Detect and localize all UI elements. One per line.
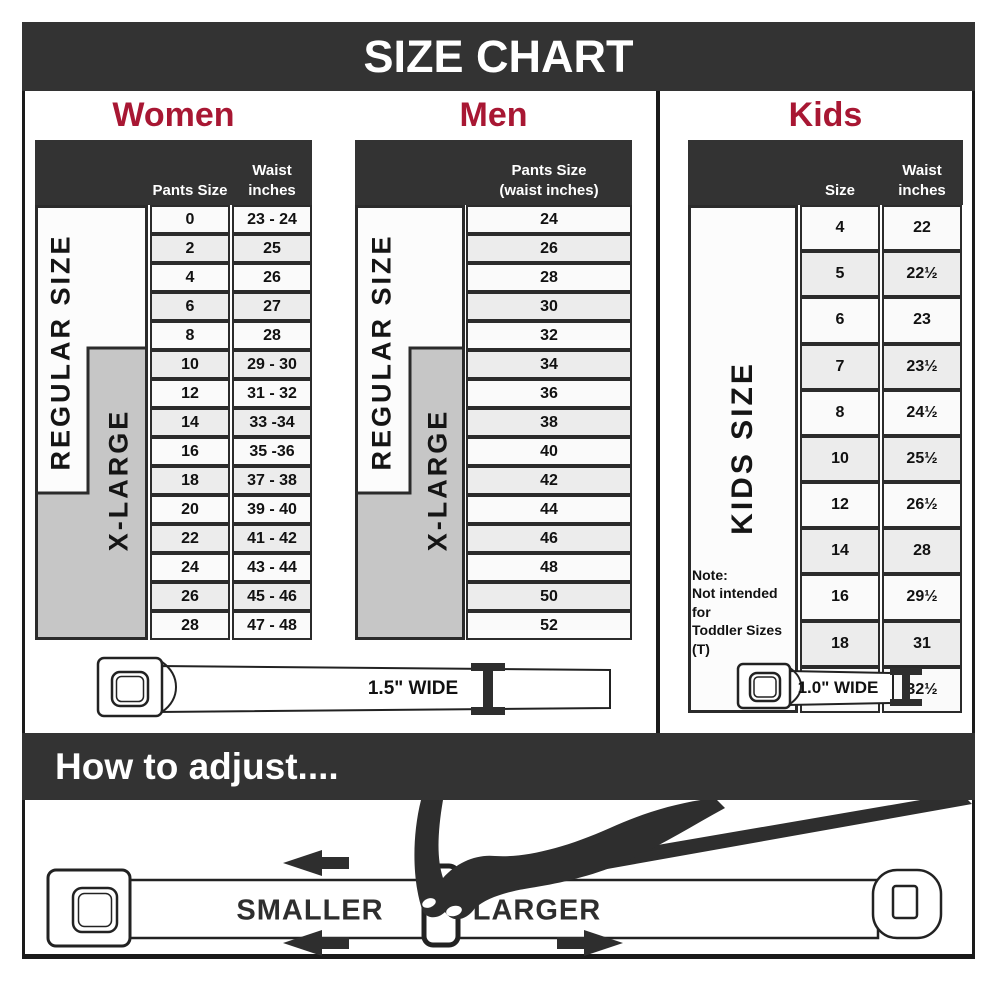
men-pants-cell: 50 bbox=[466, 582, 632, 611]
men-pants-cell: 46 bbox=[466, 524, 632, 553]
kids-size-cell: 7 bbox=[800, 344, 880, 390]
seatbelt-buckle-icon bbox=[48, 870, 130, 946]
women-pants-cell: 24 bbox=[150, 553, 230, 582]
men-pants-cell: 44 bbox=[466, 495, 632, 524]
adjustment-illustration bbox=[25, 800, 975, 958]
women-waist-cell: 31 - 32 bbox=[232, 379, 312, 408]
women-pants-cell: 14 bbox=[150, 408, 230, 437]
kids-col-size: Size bbox=[798, 140, 882, 205]
kids-waist-cell: 22½ bbox=[882, 251, 962, 297]
women-waist-cell: 29 - 30 bbox=[232, 350, 312, 379]
kids-note: Note: Not intended for Toddler Sizes (T) bbox=[692, 566, 798, 658]
kids-waist-cell: 26½ bbox=[882, 482, 962, 528]
women-pants-cell: 8 bbox=[150, 321, 230, 350]
kids-size-column: 45678101214161820 bbox=[800, 205, 880, 713]
men-pants-cell: 30 bbox=[466, 292, 632, 321]
how-to-adjust-heading: How to adjust.... bbox=[55, 746, 339, 788]
how-to-adjust-banner: How to adjust.... bbox=[22, 733, 975, 800]
women-waist-cell: 26 bbox=[232, 263, 312, 292]
men-pants-cell: 32 bbox=[466, 321, 632, 350]
women-heading: Women bbox=[35, 95, 312, 135]
kids-waist-cell: 22 bbox=[882, 205, 962, 251]
women-pants-cell: 12 bbox=[150, 379, 230, 408]
men-col-pants-size: Pants Size (waist inches) bbox=[466, 140, 632, 205]
women-pants-cell: 20 bbox=[150, 495, 230, 524]
women-xlarge-label: X-LARGE bbox=[104, 409, 135, 552]
kids-size-cell: 4 bbox=[800, 205, 880, 251]
kids-heading: Kids bbox=[688, 95, 963, 135]
women-pants-cell: 22 bbox=[150, 524, 230, 553]
men-pants-cell: 24 bbox=[466, 205, 632, 234]
women-waist-cell: 47 - 48 bbox=[232, 611, 312, 640]
size-chart-page: SIZE CHART Women Men Kids Pants Size Wai… bbox=[0, 0, 1000, 1000]
women-waist-cell: 37 - 38 bbox=[232, 466, 312, 495]
women-pants-cell: 0 bbox=[150, 205, 230, 234]
men-pants-cell: 40 bbox=[466, 437, 632, 466]
women-waist-cell: 23 - 24 bbox=[232, 205, 312, 234]
adult-belt-width-label: 1.5" WIDE bbox=[368, 678, 458, 700]
men-pants-cell: 34 bbox=[466, 350, 632, 379]
women-pants-cell: 28 bbox=[150, 611, 230, 640]
women-waist-cell: 27 bbox=[232, 292, 312, 321]
women-waist-cell: 41 - 42 bbox=[232, 524, 312, 553]
women-waist-cell: 43 - 44 bbox=[232, 553, 312, 582]
kids-waist-cell: 24½ bbox=[882, 390, 962, 436]
men-xlarge-label: X-LARGE bbox=[423, 409, 454, 552]
men-pants-cell: 26 bbox=[466, 234, 632, 263]
men-regular-label: REGULAR SIZE bbox=[367, 233, 398, 470]
kids-waist-cell: 29½ bbox=[882, 574, 962, 620]
women-pants-cell: 16 bbox=[150, 437, 230, 466]
kids-waist-cell: 23½ bbox=[882, 344, 962, 390]
width-ibeam-icon bbox=[890, 668, 922, 706]
women-pants-cell: 4 bbox=[150, 263, 230, 292]
women-waist-cell: 28 bbox=[232, 321, 312, 350]
kids-waist-cell: 23 bbox=[882, 297, 962, 343]
women-waist-cell: 25 bbox=[232, 234, 312, 263]
kids-belt-width-label: 1.0" WIDE bbox=[798, 678, 879, 698]
women-pants-column: 0246810121416182022242628 bbox=[150, 205, 230, 640]
kids-size-cell: 16 bbox=[800, 574, 880, 620]
women-regular-label: REGULAR SIZE bbox=[46, 233, 77, 470]
kids-size-cell: 5 bbox=[800, 251, 880, 297]
women-pants-cell: 26 bbox=[150, 582, 230, 611]
kids-size-cell: 14 bbox=[800, 528, 880, 574]
men-pants-cell: 36 bbox=[466, 379, 632, 408]
kids-size-label: KIDS SIZE bbox=[726, 361, 760, 535]
men-pants-cell: 28 bbox=[466, 263, 632, 292]
kids-waist-column: 2222½2323½24½25½26½2829½3132½ bbox=[882, 205, 962, 713]
section-divider bbox=[656, 91, 660, 733]
kids-waist-cell: 28 bbox=[882, 528, 962, 574]
kids-waist-cell: 25½ bbox=[882, 436, 962, 482]
women-pants-cell: 10 bbox=[150, 350, 230, 379]
women-waist-cell: 33 -34 bbox=[232, 408, 312, 437]
men-pants-cell: 48 bbox=[466, 553, 632, 582]
kids-size-cell: 10 bbox=[800, 436, 880, 482]
women-pants-cell: 18 bbox=[150, 466, 230, 495]
men-pants-cell: 52 bbox=[466, 611, 632, 640]
women-waist-cell: 45 - 46 bbox=[232, 582, 312, 611]
men-pants-cell: 38 bbox=[466, 408, 632, 437]
women-col-pants-size: Pants Size bbox=[148, 140, 232, 205]
women-pants-cell: 6 bbox=[150, 292, 230, 321]
women-waist-cell: 35 -36 bbox=[232, 437, 312, 466]
men-pants-column: 242628303234363840424446485052 bbox=[466, 205, 632, 640]
larger-label: LARGER bbox=[473, 895, 601, 928]
men-heading: Men bbox=[355, 95, 632, 135]
kids-size-cell: 6 bbox=[800, 297, 880, 343]
kids-size-cell: 12 bbox=[800, 482, 880, 528]
kids-col-waist: Waist inches bbox=[882, 140, 962, 205]
men-pants-cell: 42 bbox=[466, 466, 632, 495]
arrow-left-icon bbox=[283, 850, 349, 876]
women-pants-cell: 2 bbox=[150, 234, 230, 263]
smaller-label: SMALLER bbox=[236, 895, 383, 928]
page-title: SIZE CHART bbox=[364, 31, 634, 83]
women-col-waist: Waist inches bbox=[232, 140, 312, 205]
women-waist-cell: 39 - 40 bbox=[232, 495, 312, 524]
title-banner: SIZE CHART bbox=[22, 22, 975, 91]
women-waist-column: 23 - 242526272829 - 3031 - 3233 -3435 -3… bbox=[232, 205, 312, 640]
belt-tip-icon bbox=[873, 870, 941, 938]
kids-size-cell: 8 bbox=[800, 390, 880, 436]
